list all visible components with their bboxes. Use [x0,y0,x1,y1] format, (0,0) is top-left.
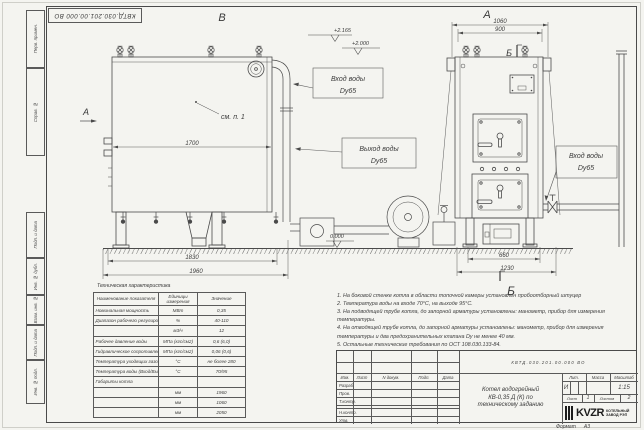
col-list: Лист [353,373,371,381]
tech-cell: 12 [198,326,246,336]
lit-value: И [562,381,570,394]
inlet-top-callout-line1: Вход воды [331,75,366,83]
logo-caption-line: ЗАВОД РЭП [606,413,629,417]
fan-scroll [387,196,429,238]
view-label-front: А [482,9,490,21]
valve-icon [208,46,214,57]
tech-table-header-row: Наименование показателя Единицы измерени… [94,293,246,306]
col-data: Дата [437,373,459,381]
note-item: 5. Остальные технические требования по О… [337,341,626,349]
tech-cell: мм [159,397,198,407]
tech-cell [94,397,159,407]
dim-1700: 1700 [185,141,199,147]
tech-cell: 70/95 [198,367,246,377]
tech-cell [94,326,159,336]
logo-caption: КОТЕЛЬНЫЙ ЗАВОД РЭП [606,409,629,418]
drawing-sheet: Перв. примен. Справ. № Подп. и дата Инв.… [0,0,644,430]
tech-row: м3/ч12 [94,326,246,336]
tech-cell: 0,06 (0,6) [198,346,246,356]
tech-cell [94,387,159,397]
dim-1060: 1060 [493,19,507,25]
format-label: Формат [556,424,576,430]
view-label-side: В [218,12,225,24]
sign-row-utv: Утв. [339,418,349,423]
mass-label: Масса [586,373,610,381]
dim-1830: 1830 [185,255,199,261]
tech-header-units: Единицы измерения [159,293,198,306]
dim-900: 900 [495,27,506,33]
tech-cell: °С [159,356,198,366]
sheet-label: Лист [562,394,582,402]
valve-icon [117,46,123,57]
tech-cell: Температура воды (Вход/Выход) [94,367,159,377]
see-detail-note: см. п. 1 [221,114,245,121]
note-item: 2. Температура воды на входе 70°С, на вы… [337,300,626,308]
tech-cell: 2050 [198,407,246,417]
upper-door [473,114,527,162]
valve-icon [474,46,480,57]
elevation-marks [308,35,380,248]
dim-1230: 1230 [500,266,514,272]
product-name-line: Котел водогрейный [482,387,539,395]
drain-tap-icon [154,212,159,223]
tech-header-name: Наименование показателя [94,293,159,306]
inlet-valve-and-riser [543,51,627,247]
valve-icon [522,46,528,57]
logo-abbr: KVZR [576,407,604,419]
tech-table-title: Техническая характеристика [97,283,170,289]
tech-row: мм2050 [94,407,246,417]
product-name-line: техническому заданию [478,402,544,410]
valve-icon [128,46,134,57]
sign-row-tkontr: Т.контр. [339,399,356,404]
sheet-value: 1 [582,394,594,402]
scale-label: Масштаб [610,373,638,381]
col-ndoc: N докум. [371,373,411,381]
inlet-right-callout-line1: Вход воды [569,152,604,160]
section-b-marks [500,45,522,281]
tech-cell: Номинальная мощность [94,306,159,316]
sheets-value: 2 [620,394,638,402]
tech-cell: Габариты котла [94,377,159,387]
tech-cell: 1960 [198,387,246,397]
lower-door [472,174,528,218]
col-izm: Изм. [337,373,353,381]
tech-row: Рабочее давление водыМПа (кгс/см2)0,6 (6… [94,336,246,346]
logo-bars-icon [565,406,574,420]
tech-cell: 0,6 (6,0) [198,336,246,346]
note-item: 3. На подводящей трубе котла, до запорно… [337,308,626,324]
product-name: Котел водогрейный КВ-0,35 Д (К) по техни… [459,373,562,424]
boiler-front-view [438,46,627,247]
tech-cell: не более 280 [198,356,246,366]
valve-icon [256,46,262,57]
technical-notes: 1. На боковой стенке котла в области топ… [337,292,626,349]
outlet-pipe-and-fan [272,60,455,247]
tech-cell: % [159,316,198,326]
tech-cell: м3/ч [159,326,198,336]
outlet-callout-line2: Dy65 [371,158,387,165]
tech-row: мм1960 [94,387,246,397]
outlet-callout-line1: Выход воды [359,145,399,153]
elevation-top: +2.165 [334,28,352,34]
elevation-inlet: +2.000 [352,41,370,47]
scale-value: 1:15 [610,381,638,394]
tech-cell: °С [159,367,198,377]
note-item: 4. На отводящей трубе котла, до запорной… [337,324,626,340]
dim-660: 660 [499,253,510,259]
tech-cell: МВт [159,306,198,316]
dim-1960: 1960 [189,269,203,275]
title-block: КВТД.030.201.00.000 ВО Изм. Лист N докум… [336,350,637,423]
tech-cell: МПа (кгс/см2) [159,336,198,346]
drain-tap-icon [121,212,126,223]
tech-cell [94,407,159,417]
sign-row-prov: Пров. [339,391,350,396]
col-podp: Подп. [411,373,437,381]
tech-cell: мм [159,407,198,417]
note-item: 1. На боковой стенке котла в области топ… [337,292,626,300]
tech-row: Диапазон рабочего регулирования%40-110 [94,316,246,326]
tech-cell: Температура уходящих газов [94,356,159,366]
tech-row: Гидравлическое сопротивление котлаМПа (к… [94,346,246,356]
tech-cell: 1060 [198,397,246,407]
sign-row-nkontr: Н.контр. [339,410,357,415]
elevation-ground: 0.000 [330,234,345,240]
tech-header-value: Значение [198,293,246,306]
format-value: А3 [584,424,590,430]
tech-cell: мм [159,387,198,397]
tech-row: Номинальная мощностьМВт0,35 [94,306,246,316]
tech-cell [159,377,198,387]
tech-cell [198,377,246,387]
section-b-label: Б [506,48,512,58]
tech-row: Габариты котла [94,377,246,387]
tech-row: мм1060 [94,397,246,407]
inlet-top-callout-line2: Dy65 [340,88,356,95]
tech-row: Температура уходящих газов°Сне более 280 [94,356,246,366]
tech-row: Температура воды (Вход/Выход)°С70/95 [94,367,246,377]
title-block-doc-number: КВТД.030.201.00.000 ВО [459,351,638,373]
tech-cell: 40-110 [198,316,246,326]
tech-table: Наименование показателя Единицы измерени… [93,292,246,418]
manufacturer-logo: KVZR КОТЕЛЬНЫЙ ЗАВОД РЭП [562,402,638,424]
lit-label: Лит. [562,373,586,381]
tech-cell: Рабочее давление воды [94,336,159,346]
section-a-label: А [82,107,89,117]
valve-icon [463,46,469,57]
tech-cell: Гидравлическое сопротивление котла [94,346,159,356]
product-name-line: КВ-0,35 Д (К) по [488,395,533,403]
sheets-label: Листов [594,394,620,402]
inlet-right-callout-line2: Dy65 [578,165,594,172]
tech-cell: 0,35 [198,306,246,316]
drain-tap-icon [274,212,279,223]
tech-cell: МПа (кгс/см2) [159,346,198,356]
tech-cell: Диапазон рабочего регулирования [94,316,159,326]
sign-row-razrab: Разраб. [339,383,354,388]
format-note: ФорматА3 [556,424,590,430]
